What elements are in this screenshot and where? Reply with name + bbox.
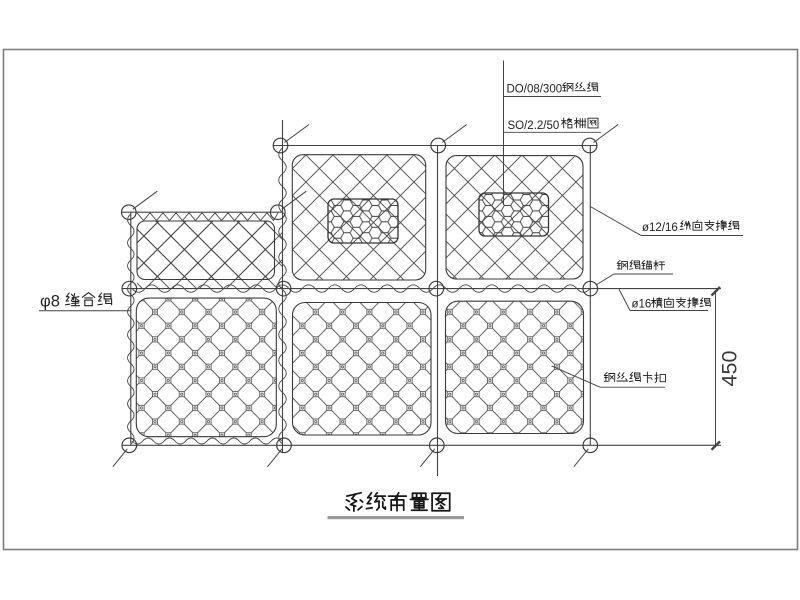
svg-text:SO/2.2/50: SO/2.2/50 [508,120,560,132]
svg-text:ø12/16: ø12/16 [642,222,678,234]
svg-text:DO/08/300: DO/08/300 [507,84,563,96]
svg-text:ø16: ø16 [632,299,652,311]
svg-text:φ8: φ8 [40,293,60,311]
svg-text:450: 450 [718,351,742,387]
